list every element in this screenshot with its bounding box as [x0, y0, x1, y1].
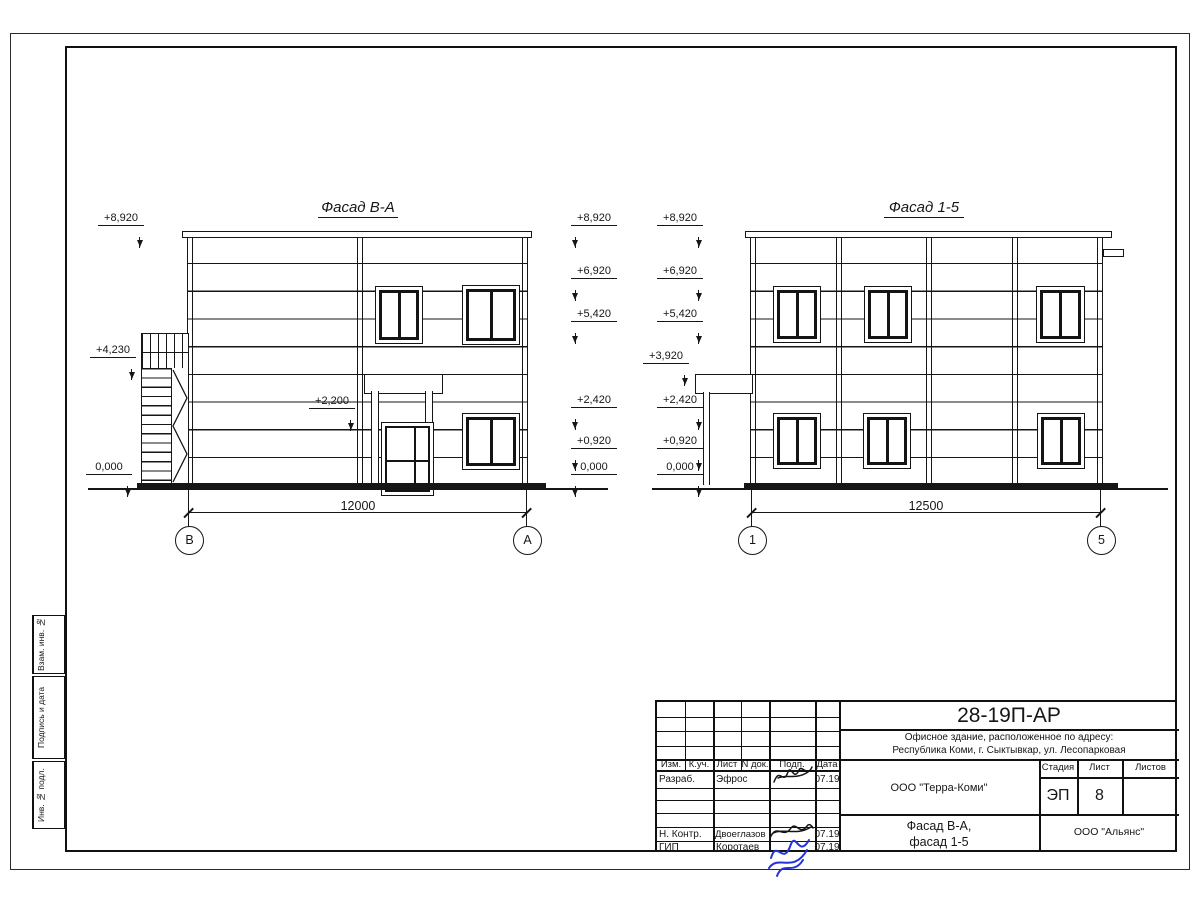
window-sash	[379, 290, 419, 340]
elevation-mark: +6,920	[571, 265, 617, 290]
elevation-mark: +2,420	[657, 394, 703, 419]
elevation-mark: +0,920	[571, 435, 617, 460]
window-sash	[1040, 290, 1081, 339]
canopy-post	[371, 391, 379, 488]
elevation-mark: +3,920	[643, 350, 689, 375]
ground-line	[652, 488, 1168, 490]
stage-value: ЭП	[1039, 777, 1077, 814]
stamp-line	[657, 731, 839, 732]
doc-number: 28-19П-АР	[839, 702, 1179, 729]
axis-bubble-a: А	[513, 526, 542, 555]
stamp-date: 07.19	[815, 771, 839, 788]
window-sash	[868, 290, 908, 339]
window	[1037, 413, 1085, 469]
title-block: Изм. К.уч. Лист N док. Подп. Дата Разраб…	[655, 700, 1177, 852]
wall-edge-line	[1097, 237, 1098, 490]
address-line-1: Офисное здание, расположенное по адресу:	[839, 731, 1179, 744]
axis-bubble-1: 1	[738, 526, 767, 555]
side-stamp-box: Подпись и дата	[32, 676, 65, 759]
window-sash	[777, 417, 817, 465]
sheet-subtitle: Фасад В-А, фасад 1-5	[839, 818, 1039, 852]
drawing-sheet: Взам. инв. № Подпись и дата Инв. № подл.…	[0, 0, 1200, 900]
wall-edge-line	[755, 237, 756, 490]
window-sash	[466, 417, 516, 466]
elevation-mark: +5,420	[657, 308, 703, 333]
pilaster-line	[362, 237, 363, 490]
stamp-role: Разраб.	[659, 771, 713, 788]
elevation-mark: 0,000	[86, 461, 132, 486]
window-sash	[867, 417, 907, 465]
wall-edge-line	[192, 237, 193, 490]
stair-brace-column	[171, 368, 189, 484]
stamp-col-kuch: К.уч.	[685, 759, 713, 770]
pilaster-line	[1012, 237, 1013, 490]
stamp-line	[657, 717, 839, 718]
elevation-mark: +0,920	[657, 435, 703, 460]
project-address: Офисное здание, расположенное по адресу:…	[839, 731, 1179, 759]
window	[462, 285, 520, 345]
extension-line	[188, 490, 189, 527]
elevation-mark: +8,920	[98, 212, 144, 237]
elevation-mark: +2,420	[571, 394, 617, 419]
side-stamp-label: Взам. инв. №	[33, 616, 48, 673]
address-line-2: Республика Коми, г. Сыктывкар, ул. Лесоп…	[839, 744, 1179, 757]
ground-line	[88, 488, 608, 490]
extension-line	[751, 490, 752, 527]
side-stamp-box: Взам. инв. №	[32, 615, 65, 674]
stair-brace-diagonals	[172, 368, 188, 484]
elevation-mark: +8,920	[571, 212, 617, 237]
subtitle-line-2: фасад 1-5	[839, 834, 1039, 850]
axis-bubble-v: В	[175, 526, 204, 555]
dimension-value: 12500	[888, 499, 964, 513]
company-name: ООО "Терра-Коми"	[839, 761, 1039, 814]
dimension-value: 12000	[320, 499, 396, 513]
stamp-name: Эфрос	[716, 771, 769, 788]
elevation-mark: +8,920	[657, 212, 703, 237]
window	[462, 413, 520, 470]
stage-label: Стадия	[1039, 759, 1077, 776]
sheet-label: Лист	[1077, 759, 1122, 776]
side-canopy	[695, 374, 753, 394]
facade-15-title: Фасад 1-5	[884, 199, 964, 218]
axis-bubble-5: 5	[1087, 526, 1116, 555]
pilaster-line	[1017, 237, 1018, 490]
window-sash	[777, 290, 817, 339]
pilaster-line	[357, 237, 358, 490]
window	[863, 413, 911, 469]
side-stamp-label: Подпись и дата	[33, 677, 48, 758]
sheet-value: 8	[1077, 777, 1122, 814]
stamp-line	[657, 813, 839, 814]
elevation-mark: 0,000	[571, 461, 617, 486]
elevation-mark: +2,200	[309, 395, 355, 420]
subtitle-line-1: Фасад В-А,	[839, 818, 1039, 834]
stamp-col-izm: Изм.	[657, 759, 685, 770]
canopy-post	[703, 392, 710, 485]
elevation-mark: +6,920	[657, 265, 703, 290]
window	[375, 286, 423, 344]
window	[773, 413, 821, 469]
side-stamp-label: Инв. № подл.	[33, 762, 48, 828]
elevation-mark: +4,230	[90, 344, 136, 369]
window	[1036, 286, 1085, 343]
window	[864, 286, 912, 343]
signature-korotaev-blue	[763, 830, 819, 880]
facade-ba-title: Фасад В-А	[318, 199, 398, 218]
stamp-role: ГИП	[659, 841, 713, 854]
signature-efros	[770, 760, 814, 790]
contractor-name: ООО "Альянс"	[1039, 814, 1179, 850]
stair-treads	[141, 368, 173, 484]
stamp-name: Коротаев	[716, 841, 769, 854]
stamp-line	[657, 746, 839, 747]
pilaster-line	[926, 237, 927, 490]
extension-line	[526, 490, 527, 527]
window-sash	[466, 289, 516, 341]
stamp-col-list: Лист	[713, 759, 741, 770]
roof-pipe	[1103, 249, 1124, 257]
pilaster-line	[836, 237, 837, 490]
stamp-name: Двоеглазов	[715, 827, 770, 841]
window	[773, 286, 821, 343]
window-sash	[1041, 417, 1081, 465]
stamp-line	[657, 800, 839, 801]
extension-line	[1100, 490, 1101, 527]
sheets-label: Листов	[1122, 759, 1179, 776]
stamp-col-ndok: N док.	[741, 759, 769, 770]
sheets-value	[1122, 777, 1179, 814]
elevation-mark: 0,000	[657, 461, 703, 486]
stamp-role: Н. Контр.	[659, 827, 713, 841]
side-stamp-box: Инв. № подл.	[32, 761, 65, 829]
stamp-col-data: Дата	[815, 759, 839, 770]
pilaster-line	[931, 237, 932, 490]
elevation-mark: +5,420	[571, 308, 617, 333]
wall-edge-line	[522, 237, 523, 490]
stair-railing-cage	[141, 333, 189, 370]
pilaster-line	[841, 237, 842, 490]
